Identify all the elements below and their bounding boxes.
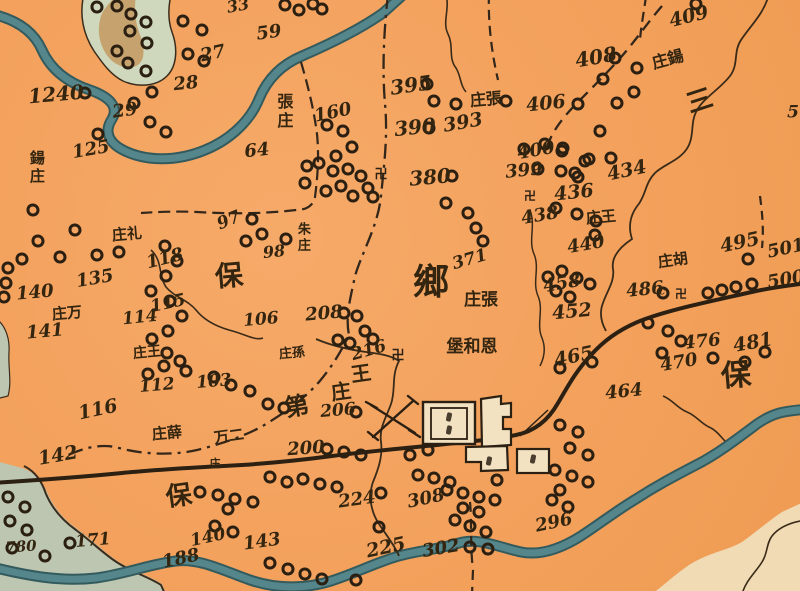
place-name-label: 朱庄 (295, 222, 309, 254)
temple-swastika-icon: 卍 (391, 350, 404, 363)
place-name-label: 庄万 (51, 305, 82, 323)
household-count-label: 501 (766, 236, 800, 261)
household-count-label: 500 (766, 268, 800, 292)
household-count-label: 440 (566, 233, 606, 257)
household-count-label: 458 (542, 272, 582, 296)
household-count-label: 171 (75, 531, 112, 551)
place-name-label: 庄王 (132, 344, 161, 361)
temple-swastika-icon: 卍 (675, 288, 687, 300)
household-count-label: 141 (25, 321, 64, 342)
household-count-label: 409 (667, 3, 710, 31)
household-count-label: 118 (145, 246, 186, 273)
household-count-label: 140 (15, 282, 54, 303)
household-count-label: 97 (215, 209, 243, 234)
household-count-label: 393 (442, 110, 484, 136)
temple-swastika-icon: 卍 (374, 169, 387, 182)
household-count-label: 464 (604, 381, 643, 403)
household-count-label: 408 (574, 44, 619, 71)
place-name-label: 堡和恩 (447, 339, 498, 357)
place-name-label: 万二 (213, 427, 245, 447)
household-count-label: 395 (389, 72, 433, 98)
household-count-label: 1240 (27, 82, 84, 107)
household-count-label: 481 (732, 330, 774, 356)
household-count-label: 140 (189, 526, 227, 550)
household-count-label: 59 (255, 22, 282, 43)
household-count-label: 98 (262, 243, 286, 261)
household-count-label: 160 (313, 100, 353, 125)
region-name-label: 鄉 (413, 264, 449, 302)
household-count-label: 406 (525, 92, 566, 115)
household-count-label: 103 (196, 372, 233, 392)
place-name-label: 庄 (210, 458, 221, 470)
place-name-label: 庄張 (469, 90, 502, 110)
household-count-label: 495 (719, 230, 762, 257)
household-count-label: 135 (75, 267, 115, 291)
region-name-label: 保 (164, 482, 194, 513)
region-name-label: 保 (720, 359, 753, 393)
labels-layer: 1240125272829335964160395390393380400399… (0, 0, 800, 591)
household-count-label: 106 (243, 310, 280, 330)
household-count-label: 296 (534, 510, 574, 535)
household-count-label: 470 (659, 351, 699, 375)
place-name-label: 庄王 (585, 209, 616, 227)
household-count-label: 225 (365, 535, 408, 562)
household-count-label: 64 (244, 141, 271, 162)
place-name-label: 庄張 (464, 292, 498, 310)
map-canvas: 1240125272829335964160395390393380400399… (0, 0, 800, 591)
household-count-label: 28 (173, 74, 200, 95)
household-count-label: 143 (242, 530, 282, 553)
place-name-label: 庄 (330, 380, 353, 404)
place-name-label: 鍚庄 (28, 150, 44, 186)
household-count-label: 465 (553, 344, 596, 371)
household-count-label: 380 (408, 165, 451, 189)
place-name-label: 張庄 (275, 93, 292, 131)
household-count-label: 308 (406, 486, 446, 511)
household-count-label: 29 (111, 100, 138, 121)
household-count-label: 302 (421, 537, 461, 561)
household-count-label: 434 (606, 158, 649, 185)
household-count-label: 780 (5, 538, 37, 555)
region-name-label: 保 (214, 260, 244, 292)
place-name-label: 庄鍚 (650, 48, 685, 73)
household-count-label: c (659, 286, 666, 297)
household-count-label: 114 (121, 308, 158, 329)
household-count-label: 390 (393, 115, 437, 139)
place-name-label: 庄孫 (278, 346, 305, 362)
household-count-label: 27 (199, 43, 227, 66)
household-count-label: 5 (787, 105, 799, 122)
household-count-label: 33 (226, 0, 251, 16)
place-name-label: 庄礼 (111, 226, 142, 244)
household-count-label: 452 (551, 301, 592, 323)
place-name-label: 王 (350, 362, 373, 386)
household-count-label: 399 (504, 160, 543, 182)
place-name-label: 庄薛 (151, 425, 182, 443)
household-count-label: 438 (520, 204, 560, 228)
household-count-label: 371 (451, 247, 490, 273)
household-count-label: 208 (304, 303, 343, 324)
household-count-label: 112 (139, 376, 176, 396)
place-name-label: 庄胡 (657, 251, 689, 271)
household-count-label: 142 (37, 443, 79, 469)
household-count-label: 224 (337, 488, 377, 511)
place-name-label: 第 (283, 392, 311, 421)
temple-swastika-icon: 卍 (524, 190, 536, 202)
region-name-label: 三 (683, 85, 716, 119)
household-count-label: 116 (77, 397, 120, 424)
household-count-label: 200 (287, 439, 326, 460)
household-count-label: 125 (71, 138, 111, 162)
household-count-label: 436 (553, 181, 594, 204)
